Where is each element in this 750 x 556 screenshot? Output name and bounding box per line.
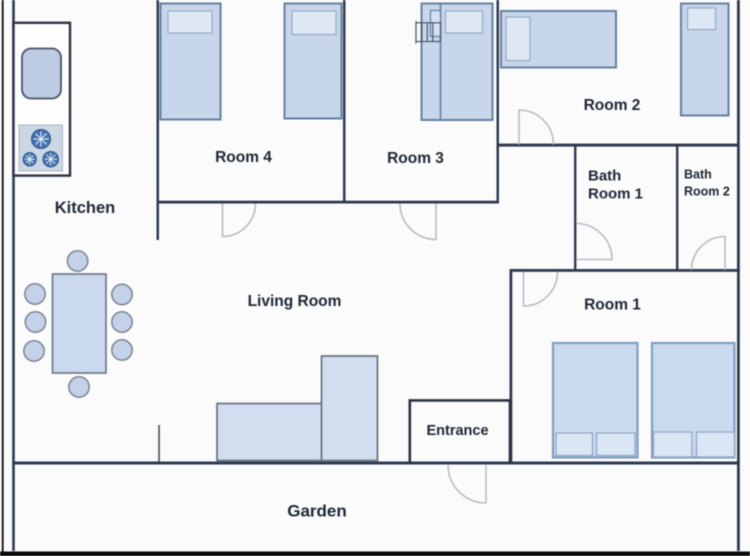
svg-text:Bath: Bath <box>588 168 621 185</box>
svg-text:Entrance: Entrance <box>426 423 488 439</box>
svg-text:Garden: Garden <box>287 502 347 521</box>
svg-text:Bath: Bath <box>684 168 712 182</box>
svg-text:Room 2: Room 2 <box>684 185 730 199</box>
svg-text:Room 1: Room 1 <box>588 186 643 203</box>
svg-text:Living Room: Living Room <box>248 293 342 310</box>
svg-text:Room 4: Room 4 <box>215 149 272 166</box>
svg-text:Room 2: Room 2 <box>584 97 641 114</box>
svg-text:Room 1: Room 1 <box>584 297 641 314</box>
svg-text:Room 3: Room 3 <box>387 150 444 167</box>
svg-text:Kitchen: Kitchen <box>55 199 116 217</box>
